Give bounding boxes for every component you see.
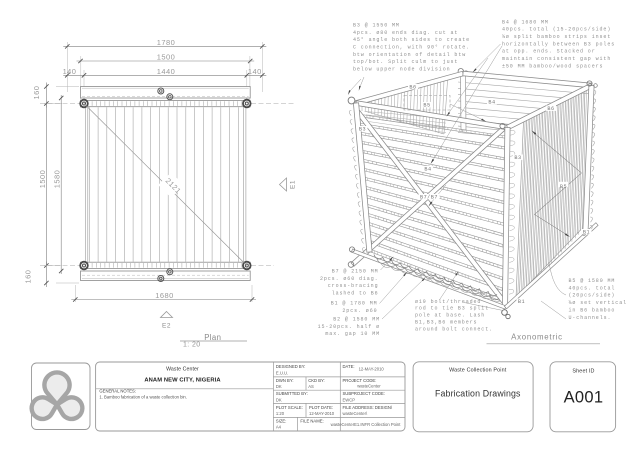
- svg-text:B3: B3: [514, 155, 521, 161]
- svg-text:CKD BY:: CKD BY:: [308, 378, 325, 383]
- svg-text:max. gap 10 MM: max. gap 10 MM: [325, 331, 380, 337]
- svg-text:40pcs. total (15-20pcs/side): 40pcs. total (15-20pcs/side): [502, 27, 611, 33]
- svg-text:rod to tie B3 split: rod to tie B3 split: [415, 306, 489, 312]
- svg-text:GENERAL NOTES:: GENERAL NOTES:: [99, 389, 136, 394]
- svg-text:B4: B4: [424, 167, 431, 173]
- svg-text:2pcs. ø60 diag.: 2pcs. ø60 diag.: [320, 276, 379, 282]
- svg-text:lashed to B6: lashed to B6: [332, 291, 379, 297]
- svg-text:⅜ø split bamboo strips inset: ⅜ø split bamboo strips inset: [502, 34, 611, 40]
- svg-text:U-channels.: U-channels.: [569, 315, 612, 321]
- svg-text:B2 @ 1580 MM: B2 @ 1580 MM: [333, 317, 380, 323]
- svg-text:±50 MM bamboo/wood spacers: ±50 MM bamboo/wood spacers: [502, 63, 603, 69]
- svg-text:PLOT DATE:: PLOT DATE:: [309, 405, 333, 410]
- svg-text:C connection, with 90° rotate.: C connection, with 90° rotate.: [353, 45, 470, 51]
- svg-text:B3 @ 1550 MM: B3 @ 1550 MM: [353, 23, 400, 29]
- svg-text:Plan: Plan: [204, 333, 221, 342]
- svg-text:FILE NAME:: FILE NAME:: [300, 418, 323, 423]
- svg-text:1: 20: 1: 20: [183, 341, 201, 348]
- svg-text:DWN BY:: DWN BY:: [276, 378, 294, 383]
- svg-text:B5: B5: [423, 103, 430, 109]
- svg-text:wasteCenter: wasteCenter: [357, 384, 381, 389]
- svg-text:in B6 bamboo: in B6 bamboo: [569, 307, 616, 313]
- svg-text:ANAM NEW CITY, NIGERIA: ANAM NEW CITY, NIGERIA: [144, 377, 221, 383]
- svg-text:Waste Collection Point: Waste Collection Point: [449, 368, 507, 374]
- svg-text:B6: B6: [547, 106, 554, 112]
- svg-text:horizontally between B3 poles: horizontally between B3 poles: [502, 41, 615, 47]
- svg-text:Axonometric: Axonometric: [511, 333, 563, 342]
- svg-text:A001: A001: [564, 389, 604, 407]
- svg-text:1780: 1780: [157, 38, 176, 47]
- svg-text:1500: 1500: [38, 170, 47, 189]
- svg-text:40pcs. total: 40pcs. total: [569, 285, 616, 291]
- svg-text:B1 @ 1780 MM: B1 @ 1780 MM: [331, 301, 378, 307]
- svg-text:cross-bracing: cross-bracing: [328, 283, 379, 289]
- svg-text:top/bot. Split culm to just: top/bot. Split culm to just: [353, 59, 458, 65]
- svg-text:160: 160: [32, 86, 41, 100]
- svg-text:FILE ADDRESS: DESIGN\: FILE ADDRESS: DESIGN\: [343, 405, 393, 410]
- svg-text:2pcs. ø60: 2pcs. ø60: [342, 308, 377, 314]
- svg-text:at opp. ends. Stacked or: at opp. ends. Stacked or: [502, 49, 596, 55]
- svg-text:maintain consistent gap with: maintain consistent gap with: [502, 56, 611, 62]
- svg-text:PLOT SCALE:: PLOT SCALE:: [276, 405, 303, 410]
- svg-text:4pcs. ø80 ends diag. cut at: 4pcs. ø80 ends diag. cut at: [353, 30, 458, 36]
- svg-text:B1,B3,B6 members: B1,B3,B6 members: [415, 320, 477, 326]
- svg-text:1440: 1440: [157, 67, 176, 76]
- svg-text:B1: B1: [518, 299, 525, 305]
- svg-text:wasteCenter\: wasteCenter\: [343, 411, 369, 416]
- svg-text:around bolt connect.: around bolt connect.: [415, 326, 493, 332]
- svg-text:B4: B4: [488, 100, 495, 106]
- svg-text:E.U.U.: E.U.U.: [276, 370, 288, 375]
- svg-text:140: 140: [63, 67, 77, 76]
- svg-text:DK: DK: [276, 384, 282, 389]
- svg-text:B1: B1: [583, 230, 590, 236]
- svg-text:Sheet ID: Sheet ID: [572, 368, 594, 374]
- svg-text:B7 @ 2150 MM: B7 @ 2150 MM: [332, 269, 379, 275]
- svg-text:E1: E1: [290, 180, 297, 189]
- svg-text:12-MAY-2010: 12-MAY-2010: [359, 367, 385, 372]
- svg-text:160: 160: [24, 270, 33, 284]
- svg-text:1500: 1500: [157, 53, 176, 62]
- svg-text:45° angle both sides to create: 45° angle both sides to create: [353, 37, 470, 43]
- svg-text:140: 140: [248, 67, 262, 76]
- svg-text:DK: DK: [276, 398, 282, 403]
- svg-text:E2: E2: [162, 323, 171, 330]
- svg-text:(20pcs/side): (20pcs/side): [569, 293, 616, 299]
- svg-text:SUBMITTED BY:: SUBMITTED BY:: [276, 391, 308, 396]
- svg-text:1680: 1680: [155, 291, 174, 300]
- svg-text:PROJECT CODE:: PROJECT CODE:: [343, 378, 377, 383]
- svg-text:wasteCenterE1.INFR Collection: wasteCenterE1.INFR Collection Point: [331, 422, 402, 427]
- svg-text:SUBPROJECT CODE:: SUBPROJECT CODE:: [343, 391, 386, 396]
- svg-text:1:20: 1:20: [276, 411, 285, 416]
- svg-text:Fabrication Drawings: Fabrication Drawings: [435, 388, 521, 398]
- svg-text:A4: A4: [276, 425, 282, 430]
- svg-text:below upper node division: below upper node division: [353, 67, 451, 73]
- svg-text:1. Bamboo fabrication of a was: 1. Bamboo fabrication of a waste collect…: [99, 395, 187, 400]
- svg-text:btw orientation of detail btw: btw orientation of detail btw: [353, 52, 466, 58]
- svg-text:12-MAY-2010: 12-MAY-2010: [309, 411, 335, 416]
- svg-text:SIZE:: SIZE:: [276, 418, 286, 423]
- svg-text:B5: B5: [560, 184, 567, 190]
- svg-text:B4 @ 1680 MM: B4 @ 1680 MM: [502, 19, 549, 25]
- svg-text:pole at base. Lash: pole at base. Lash: [415, 313, 485, 319]
- svg-text:AS: AS: [308, 384, 314, 389]
- svg-text:B5 @ 1580 MM: B5 @ 1580 MM: [569, 278, 616, 284]
- svg-text:⅜ø set vertical: ⅜ø set vertical: [569, 300, 628, 306]
- svg-text:1580: 1580: [53, 170, 62, 189]
- svg-text:B6: B6: [409, 85, 416, 91]
- svg-text:EWCP: EWCP: [343, 398, 356, 403]
- svg-text:15-20pcs. half ø: 15-20pcs. half ø: [318, 324, 380, 330]
- svg-text:DESIGNED BY:: DESIGNED BY:: [276, 364, 306, 369]
- svg-text:B7/B7: B7/B7: [420, 195, 438, 201]
- svg-text:B3: B3: [359, 127, 366, 133]
- svg-text:Waste Center: Waste Center: [166, 367, 199, 373]
- svg-text:DATE:: DATE:: [343, 364, 355, 369]
